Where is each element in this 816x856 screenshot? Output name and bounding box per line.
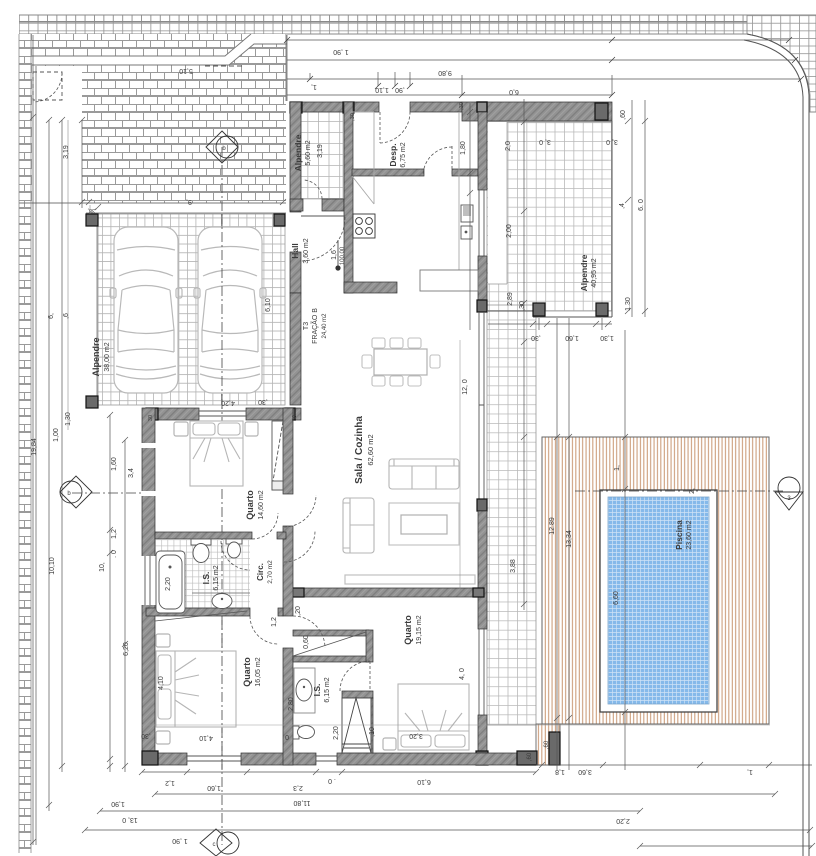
svg-text:100.00: 100.00 <box>340 246 346 265</box>
svg-text:1,2: 1,2 <box>165 779 175 786</box>
svg-text:6,60: 6,60 <box>613 591 620 605</box>
svg-text:1 ,90: 1 ,90 <box>172 837 188 844</box>
svg-text:38,00 m2: 38,00 m2 <box>104 342 111 371</box>
svg-text:1,: 1, <box>747 768 753 775</box>
svg-text:,60: ,60 <box>544 740 550 749</box>
svg-text:FRAÇÃO B: FRAÇÃO B <box>310 308 319 344</box>
svg-text:2,70 m2: 2,70 m2 <box>267 560 274 584</box>
svg-text:3, 0: 3, 0 <box>606 138 618 145</box>
svg-text:40,95 m2: 40,95 m2 <box>591 258 598 287</box>
svg-text:2,: 2, <box>689 488 696 494</box>
svg-text:,30: ,30 <box>141 732 151 739</box>
svg-text:3,88: 3,88 <box>510 559 517 573</box>
svg-text:9,80: 9,80 <box>438 69 452 76</box>
svg-text:62,60 m2: 62,60 m2 <box>366 434 375 465</box>
svg-text:16,05 m2: 16,05 m2 <box>255 657 262 686</box>
svg-text:4,20: 4,20 <box>221 399 235 406</box>
svg-text:4,10: 4,10 <box>158 676 165 690</box>
svg-text:Sala / Cozinha: Sala / Cozinha <box>354 416 365 484</box>
svg-text:1,2: 1,2 <box>271 617 278 627</box>
svg-text:1,10: 1,10 <box>375 86 389 93</box>
svg-text:1,00: 1,00 <box>53 428 60 442</box>
svg-text:c: c <box>213 842 216 848</box>
svg-text:I.S.: I.S. <box>312 684 322 697</box>
svg-text:,60: ,60 <box>620 110 627 120</box>
svg-text:6,15 m2: 6,15 m2 <box>324 677 331 702</box>
svg-text:1,60: 1,60 <box>207 784 221 791</box>
svg-text:1,90: 1,90 <box>111 800 125 807</box>
svg-text:11,80: 11,80 <box>293 799 310 806</box>
svg-text:,30: ,30 <box>459 102 465 110</box>
svg-text:,30: ,30 <box>258 398 268 405</box>
svg-text:12, 0: 12, 0 <box>462 379 469 395</box>
svg-text:30: 30 <box>292 415 298 421</box>
svg-text:3, 0: 3, 0 <box>539 138 551 145</box>
svg-text:. 0: . 0 <box>111 550 118 558</box>
svg-text:Piscina: Piscina <box>674 520 684 550</box>
svg-text:6. 0: 6. 0 <box>638 199 645 211</box>
svg-text:Alpendre: Alpendre <box>91 337 101 376</box>
svg-text:2,20: 2,20 <box>333 726 340 740</box>
svg-text:,30: ,30 <box>531 334 541 341</box>
svg-text:6,10: 6,10 <box>417 778 431 785</box>
svg-text:23,60 m2: 23,60 m2 <box>686 520 693 549</box>
svg-text:,6: ,6 <box>63 313 70 319</box>
svg-text:Circ.: Circ. <box>256 563 265 581</box>
svg-text:6,15 m2: 6,15 m2 <box>213 565 220 590</box>
svg-text:3,19: 3,19 <box>317 144 324 158</box>
svg-text:13, 0: 13, 0 <box>122 816 138 823</box>
svg-text:1,: 1, <box>311 83 317 90</box>
svg-text:1,8: 1,8 <box>555 768 565 775</box>
svg-text:12.89: 12.89 <box>549 517 556 535</box>
svg-text:10,: 10, <box>99 562 106 572</box>
svg-text:3,4: 3,4 <box>128 468 135 478</box>
svg-text:2,0: 2,0 <box>505 141 512 151</box>
svg-text:2,00: 2,00 <box>506 224 513 238</box>
svg-text:T3: T3 <box>303 322 310 330</box>
svg-text:4,10: 4,10 <box>199 734 213 741</box>
svg-text:,60: ,60 <box>527 752 533 761</box>
svg-text:2,80: 2,80 <box>288 697 295 711</box>
svg-text:13,34: 13,34 <box>566 530 573 548</box>
svg-text:2,89: 2,89 <box>507 292 514 306</box>
svg-text:Alpendre: Alpendre <box>579 254 589 291</box>
svg-text:30: 30 <box>148 415 154 421</box>
svg-text:9,: 9, <box>186 198 192 205</box>
svg-text:5,10: 5,10 <box>179 67 193 74</box>
svg-text:2,3: 2,3 <box>293 784 303 791</box>
svg-text:1 ,90: 1 ,90 <box>333 48 349 55</box>
svg-text:Alpendre: Alpendre <box>293 134 303 171</box>
svg-text:3,20: 3,20 <box>409 732 423 739</box>
svg-text:6,75 m2: 6,75 m2 <box>400 142 407 167</box>
svg-text:3,19: 3,19 <box>63 145 70 159</box>
svg-text:24,40 m2: 24,40 m2 <box>322 313 328 339</box>
svg-text:Desp.: Desp. <box>388 143 398 166</box>
svg-text:I.S.: I.S. <box>201 572 211 585</box>
svg-text:,4: ,4 <box>619 203 626 209</box>
svg-text:Quarto: Quarto <box>242 657 252 687</box>
svg-text:,10: ,10 <box>369 727 376 737</box>
svg-text:1,: 1, <box>614 465 621 471</box>
svg-text:2,20: 2,20 <box>165 577 172 591</box>
svg-text:1,30: 1,30 <box>600 334 614 341</box>
svg-text:,30: ,30 <box>519 301 526 311</box>
svg-text:,38,: ,38, <box>87 207 97 213</box>
svg-text:Hall: Hall <box>290 243 300 259</box>
svg-text:,30: ,30 <box>350 113 356 121</box>
svg-text:10,10: 10,10 <box>49 557 56 575</box>
svg-text:4, 0: 4, 0 <box>459 668 466 680</box>
svg-text:,90: ,90 <box>395 86 405 93</box>
svg-text:Quarto: Quarto <box>245 490 255 520</box>
svg-text:,20: ,20 <box>295 606 302 616</box>
svg-text:0: 0 <box>285 733 289 740</box>
svg-text:19,84: 19,84 <box>31 438 38 456</box>
svg-text:3,60 m2: 3,60 m2 <box>303 238 310 263</box>
svg-text:1,2: 1,2 <box>111 529 118 539</box>
svg-text:1,6: 1,6 <box>331 250 338 260</box>
svg-text:3,60: 3,60 <box>578 768 592 775</box>
svg-text:1,60: 1,60 <box>111 457 118 471</box>
svg-text:. 0: . 0 <box>328 777 336 784</box>
svg-text:1,60: 1,60 <box>565 334 579 341</box>
svg-text:1,80: 1,80 <box>460 141 467 155</box>
svg-text:6,0: 6,0 <box>509 88 519 95</box>
svg-text:6,20: 6,20 <box>123 642 130 656</box>
svg-text:0,60: 0,60 <box>303 635 310 649</box>
svg-text:5,60 m2: 5,60 m2 <box>305 140 312 165</box>
svg-text:2,20: 2,20 <box>616 817 630 824</box>
svg-text:Quarto: Quarto <box>403 615 413 645</box>
svg-text:1,30: 1,30 <box>65 412 72 426</box>
svg-text:6,10: 6,10 <box>265 298 272 312</box>
svg-text:6,: 6, <box>48 313 55 319</box>
svg-text:14,60 m2: 14,60 m2 <box>258 490 265 519</box>
svg-text:19,15 m2: 19,15 m2 <box>416 615 423 644</box>
svg-text:1.30: 1.30 <box>625 297 632 311</box>
